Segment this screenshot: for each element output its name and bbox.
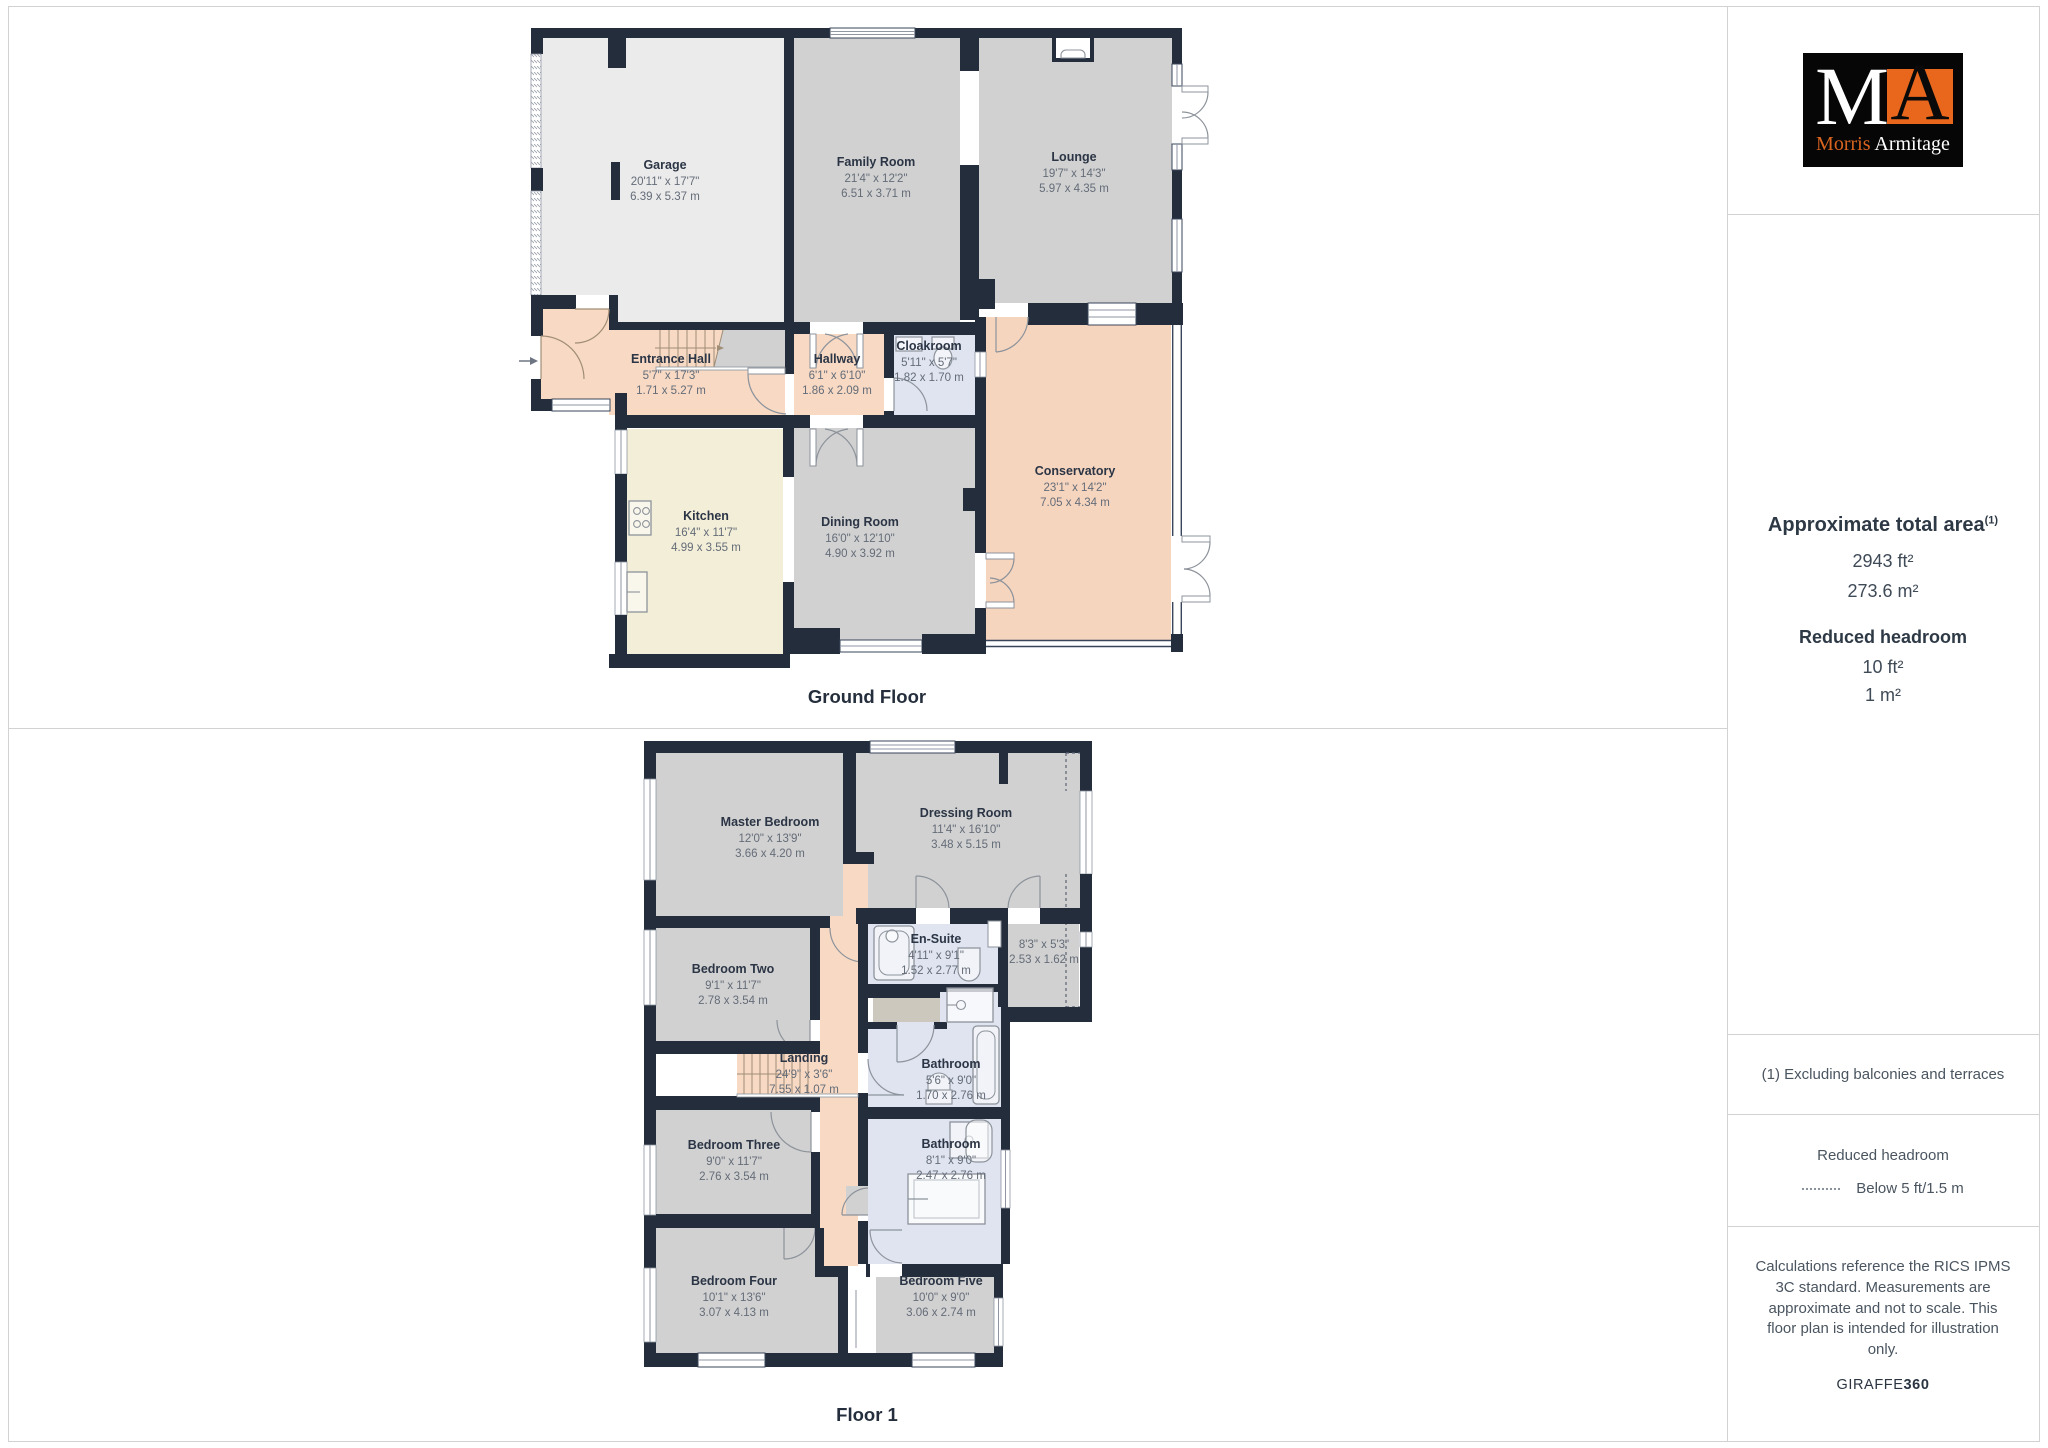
svg-text:Bedroom Two: Bedroom Two [692, 962, 775, 976]
svg-text:Bathroom: Bathroom [921, 1057, 980, 1071]
svg-text:8'1" x 9'0": 8'1" x 9'0" [926, 1155, 976, 1167]
svg-text:4'11" x 9'1": 4'11" x 9'1" [908, 950, 964, 962]
svg-text:5'6" x 9'0": 5'6" x 9'0" [926, 1075, 976, 1087]
svg-text:Bedroom Four: Bedroom Four [691, 1274, 777, 1288]
svg-text:9'1" x 11'7": 9'1" x 11'7" [705, 980, 761, 992]
svg-text:Floor 1: Floor 1 [836, 1404, 898, 1425]
svg-text:16'0" x 12'10": 16'0" x 12'10" [825, 533, 894, 545]
svg-text:1.52 x 2.77 m: 1.52 x 2.77 m [901, 965, 971, 977]
svg-text:16'4" x 11'7": 16'4" x 11'7" [675, 527, 737, 539]
svg-text:Kitchen: Kitchen [683, 509, 729, 523]
svg-text:7.05 x 4.34 m: 7.05 x 4.34 m [1040, 497, 1110, 509]
svg-text:6.51 x 3.71 m: 6.51 x 3.71 m [841, 188, 911, 200]
svg-text:7.55 x 1.07 m: 7.55 x 1.07 m [769, 1084, 839, 1096]
svg-text:3.06 x 2.74 m: 3.06 x 2.74 m [906, 1307, 976, 1319]
svg-text:19'7" x 14'3": 19'7" x 14'3" [1042, 168, 1105, 180]
svg-text:Bathroom: Bathroom [921, 1137, 980, 1151]
svg-text:En-Suite: En-Suite [911, 932, 962, 946]
svg-text:21'4" x 12'2": 21'4" x 12'2" [844, 173, 907, 185]
svg-text:Cloakroom: Cloakroom [896, 339, 961, 353]
svg-text:Master Bedroom: Master Bedroom [721, 815, 820, 829]
svg-text:Conservatory: Conservatory [1035, 464, 1116, 478]
svg-text:Dressing Room: Dressing Room [920, 806, 1012, 820]
svg-text:Family Room: Family Room [837, 155, 916, 169]
svg-text:24'9" x 3'6": 24'9" x 3'6" [776, 1069, 833, 1081]
svg-text:9'0" x 11'7": 9'0" x 11'7" [706, 1156, 762, 1168]
svg-text:2.53 x 1.62 m: 2.53 x 1.62 m [1009, 954, 1079, 966]
svg-text:2.78 x 3.54 m: 2.78 x 3.54 m [698, 995, 768, 1007]
svg-text:Bedroom Three: Bedroom Three [688, 1138, 780, 1152]
svg-text:23'1" x 14'2": 23'1" x 14'2" [1043, 482, 1106, 494]
svg-text:4.90 x 3.92 m: 4.90 x 3.92 m [825, 548, 895, 560]
svg-text:5.97 x 4.35 m: 5.97 x 4.35 m [1039, 183, 1109, 195]
svg-text:Entrance Hall: Entrance Hall [631, 352, 711, 366]
svg-text:8'3" x 5'3": 8'3" x 5'3" [1019, 939, 1069, 951]
svg-text:4.99 x 3.55 m: 4.99 x 3.55 m [671, 542, 741, 554]
svg-text:5'7" x 17'3": 5'7" x 17'3" [643, 370, 700, 382]
svg-text:Dining Room: Dining Room [821, 515, 899, 529]
svg-text:2.76 x 3.54 m: 2.76 x 3.54 m [699, 1171, 769, 1183]
svg-text:1.70 x 2.76 m: 1.70 x 2.76 m [916, 1090, 986, 1102]
svg-text:1.86 x 2.09 m: 1.86 x 2.09 m [802, 385, 872, 397]
svg-text:6'1" x 6'10": 6'1" x 6'10" [809, 370, 866, 382]
svg-text:Landing: Landing [780, 1051, 829, 1065]
svg-text:1.71 x 5.27 m: 1.71 x 5.27 m [636, 385, 706, 397]
svg-text:Garage: Garage [643, 158, 686, 172]
svg-text:10'0" x 9'0": 10'0" x 9'0" [913, 1292, 970, 1304]
svg-text:10'1" x 13'6": 10'1" x 13'6" [702, 1292, 765, 1304]
svg-text:Bedroom Five: Bedroom Five [899, 1274, 982, 1288]
svg-text:1.82 x 1.70 m: 1.82 x 1.70 m [894, 372, 964, 384]
svg-text:3.07 x 4.13 m: 3.07 x 4.13 m [699, 1307, 769, 1319]
svg-text:Ground Floor: Ground Floor [808, 686, 926, 707]
svg-text:Lounge: Lounge [1051, 150, 1096, 164]
svg-text:5'11" x 5'7": 5'11" x 5'7" [901, 357, 957, 369]
svg-text:3.48 x 5.15 m: 3.48 x 5.15 m [931, 839, 1001, 851]
svg-text:Hallway: Hallway [814, 352, 861, 366]
svg-text:6.39 x 5.37 m: 6.39 x 5.37 m [630, 191, 700, 203]
svg-text:2.47 x 2.76 m: 2.47 x 2.76 m [916, 1170, 986, 1182]
svg-text:3.66 x 4.20 m: 3.66 x 4.20 m [735, 848, 805, 860]
svg-text:20'11" x 17'7": 20'11" x 17'7" [631, 176, 700, 188]
svg-text:11'4" x 16'10": 11'4" x 16'10" [932, 824, 1001, 836]
svg-text:12'0" x 13'9": 12'0" x 13'9" [738, 833, 801, 845]
